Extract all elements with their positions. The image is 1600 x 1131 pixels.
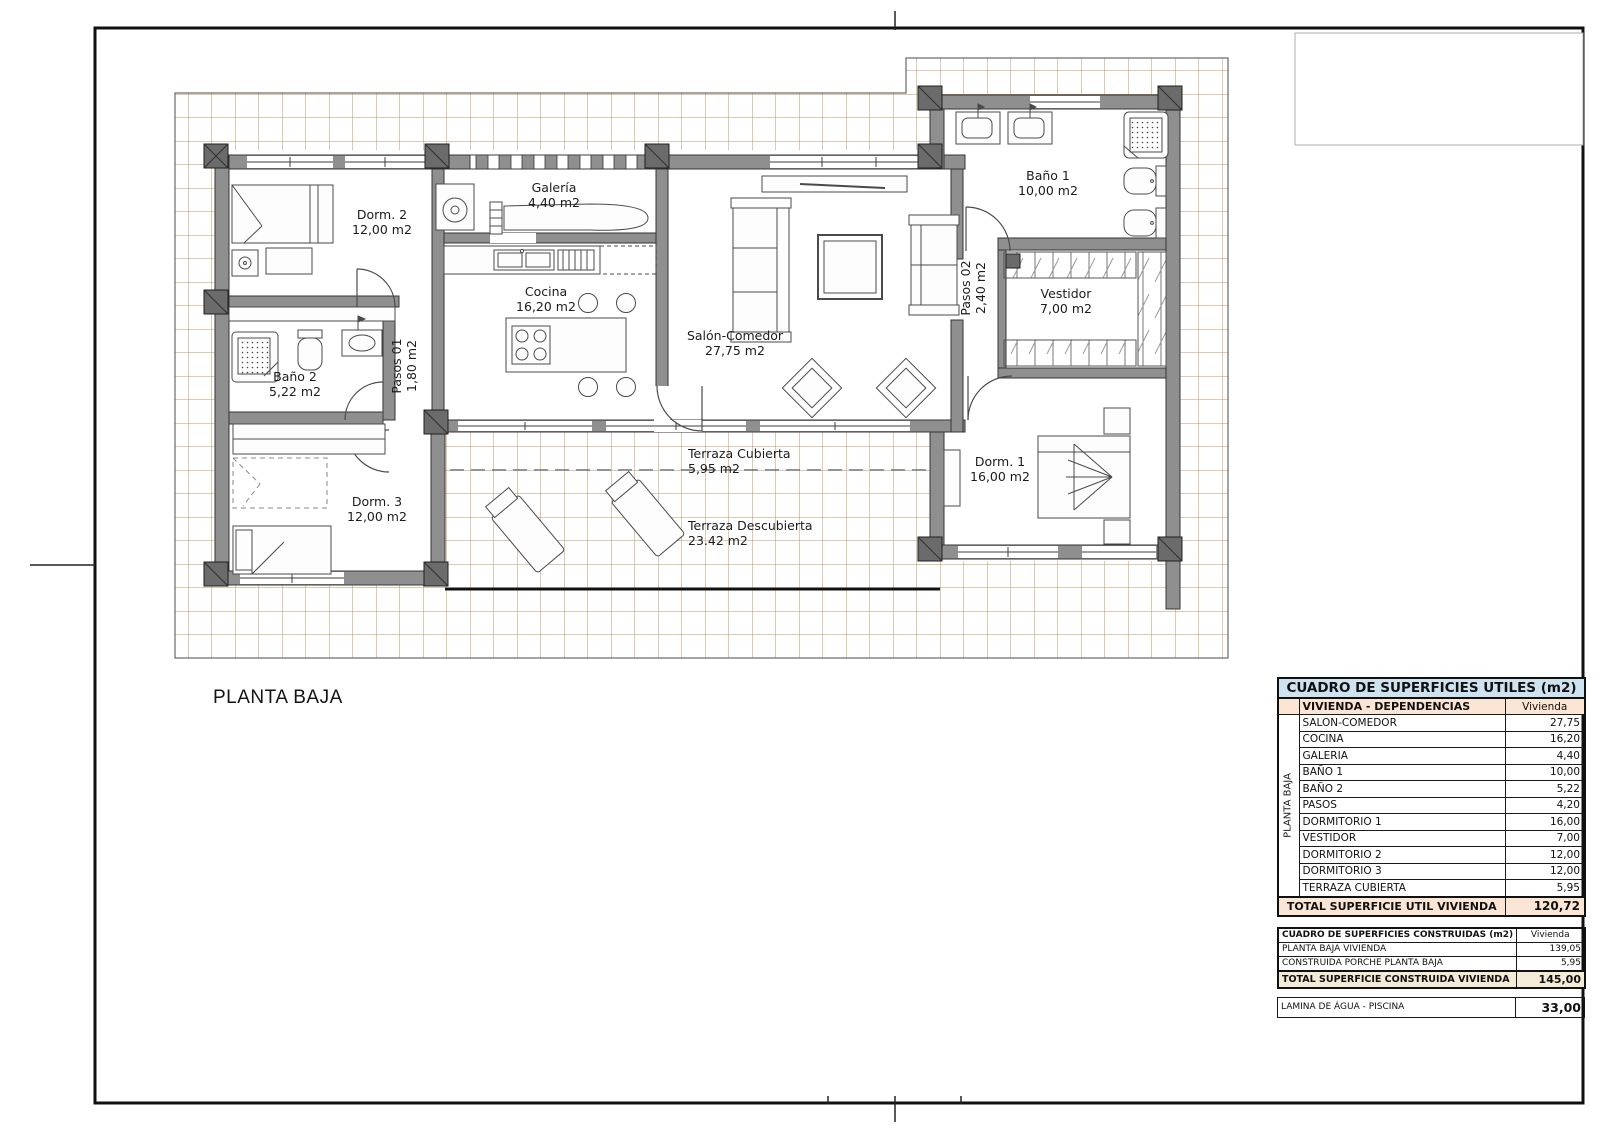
furniture-tv-sideboard-salon (762, 176, 907, 192)
room-label-cocina: Cocina (525, 284, 567, 299)
useful-areas-table: CUADRO DE SUPERFICIES UTILES (m2) VIVIEN… (1277, 677, 1586, 917)
table-row: PLANTA BAJA SALON-COMEDOR 27,75 (1278, 715, 1585, 732)
header-dependencias: VIVIENDA - DEPENDENCIAS (1299, 698, 1505, 715)
table-row: DORMITORIO 212,00 (1278, 847, 1585, 864)
room-label-pasos02: Pasos 02 (958, 260, 973, 315)
furniture-bed-dorm3 (233, 526, 331, 574)
room-area-cocina: 16,20 m2 (516, 299, 576, 314)
title-block-placeholder (1295, 33, 1583, 145)
furniture-toilet-bano2 (298, 330, 322, 370)
pool-label: LAMINA DE ÁGUA - PISCINA (1278, 997, 1516, 1017)
furniture-nightstand-bottom-dorm1 (1104, 520, 1130, 544)
pool-area-table: LAMINA DE ÁGUA - PISCINA 33,00 (1277, 997, 1585, 1018)
room-area-vestidor: 7,00 m2 (1040, 301, 1092, 316)
table-row: DORMITORIO 312,00 (1278, 863, 1585, 880)
table-row: PASOS4,20 (1278, 797, 1585, 814)
floor-group-cell: PLANTA BAJA (1278, 715, 1299, 897)
room-label-vestidor: Vestidor (1041, 286, 1093, 301)
furniture-rug-table-salon (818, 235, 882, 299)
table-row: CONSTRUIDA PORCHE PLANTA BAJA5,95 (1278, 956, 1585, 971)
room-label-dorm1: Dorm. 1 (975, 454, 1025, 469)
table-row: VESTIDOR7,00 (1278, 830, 1585, 847)
useful-total-value: 120,72 (1505, 897, 1585, 916)
built-areas-title: CUADRO DE SUPERFICIES CONSTRUIDAS (m2) (1278, 928, 1516, 943)
furniture-sofa-left-salon (731, 198, 791, 342)
room-area-dorm2: 12,00 m2 (352, 222, 412, 237)
room-label-bano1: Baño 1 (1026, 168, 1070, 183)
built-areas-table: CUADRO DE SUPERFICIES CONSTRUIDAS (m2) V… (1277, 927, 1586, 989)
room-label-dorm3: Dorm. 3 (352, 494, 402, 509)
pool-value: 33,00 (1516, 997, 1585, 1017)
header-vivienda: Vivienda (1505, 698, 1585, 715)
table-row: BAÑO 110,00 (1278, 764, 1585, 781)
useful-areas-title: CUADRO DE SUPERFICIES UTILES (m2) (1278, 678, 1585, 698)
furniture-nightstand-top-dorm1 (1104, 408, 1130, 434)
room-area-terraza-cubierta: 5,95 m2 (688, 461, 740, 476)
header-spacer-cell (1278, 698, 1299, 715)
room-area-terraza-descubierta: 23.42 m2 (688, 533, 748, 548)
room-label-terraza-descubierta: Terraza Descubierta (687, 518, 813, 533)
useful-total-row: TOTAL SUPERFICIE UTIL VIVIENDA 120,72 (1278, 897, 1585, 916)
furniture-bed-dorm2 (232, 185, 333, 243)
room-area-galeria: 4,40 m2 (528, 195, 580, 210)
room-label-terraza-cubierta: Terraza Cubierta (687, 446, 791, 461)
floor-group-label: PLANTA BAJA (1283, 797, 1294, 813)
area-tables: CUADRO DE SUPERFICIES UTILES (m2) VIVIEN… (1277, 677, 1584, 1018)
furniture-wardrobe-dorm3 (233, 424, 385, 454)
furniture-shower-bano1 (1124, 112, 1168, 158)
room-label-bano2: Baño 2 (273, 369, 317, 384)
room-area-dorm3: 12,00 m2 (347, 509, 407, 524)
furniture-island-cocina (506, 318, 626, 372)
furniture-nightstand-dorm2 (232, 250, 258, 276)
built-header-vivienda: Vivienda (1516, 928, 1585, 943)
room-area-bano2: 5,22 m2 (269, 384, 321, 399)
built-total-value: 145,00 (1516, 971, 1585, 988)
table-row: DORMITORIO 116,00 (1278, 814, 1585, 831)
furniture-wardrobe-dorm2 (229, 307, 395, 321)
room-label-salon: Salón-Comedor (687, 328, 784, 343)
furniture-bed-dorm1 (1038, 436, 1130, 518)
room-area-pasos01: 1,80 m2 (404, 340, 419, 392)
table-row: BAÑO 25,22 (1278, 781, 1585, 798)
built-total-row: TOTAL SUPERFICIE CONSTRUIDA VIVIENDA 145… (1278, 971, 1585, 988)
room-area-pasos02: 2,40 m2 (973, 262, 988, 314)
furniture-dresser-dorm2 (266, 248, 312, 274)
table-row: PLANTA BAJA VIVIENDA139,05 (1278, 942, 1585, 956)
table-row: TERRAZA CUBIERTA5,95 (1278, 880, 1585, 897)
room-label-dorm2: Dorm. 2 (357, 207, 407, 222)
table-row: GALERIA4,40 (1278, 748, 1585, 765)
furniture-sofa-right-salon (909, 215, 959, 315)
room-label-pasos01: Pasos 01 (389, 338, 404, 393)
furniture-shower-bano2 (232, 332, 278, 382)
built-header-row: CUADRO DE SUPERFICIES CONSTRUIDAS (m2) V… (1278, 928, 1585, 943)
room-area-dorm1: 16,00 m2 (970, 469, 1030, 484)
room-area-salon: 27,75 m2 (705, 343, 765, 358)
furniture-washer-galeria (436, 184, 474, 230)
floor-caption: PLANTA BAJA (213, 687, 343, 709)
drawing-sheet: Dorm. 2 12,00 m2 Galería 4,40 m2 Cocina … (0, 0, 1600, 1131)
table-row: COCINA16,20 (1278, 731, 1585, 748)
furniture-cabinet-dorm1 (944, 450, 960, 506)
built-total-label: TOTAL SUPERFICIE CONSTRUIDA VIVIENDA (1278, 971, 1516, 988)
room-label-galeria: Galería (532, 180, 577, 195)
room-area-bano1: 10,00 m2 (1018, 183, 1078, 198)
pool-row: LAMINA DE ÁGUA - PISCINA 33,00 (1278, 997, 1585, 1017)
useful-total-label: TOTAL SUPERFICIE UTIL VIVIENDA (1278, 897, 1505, 916)
